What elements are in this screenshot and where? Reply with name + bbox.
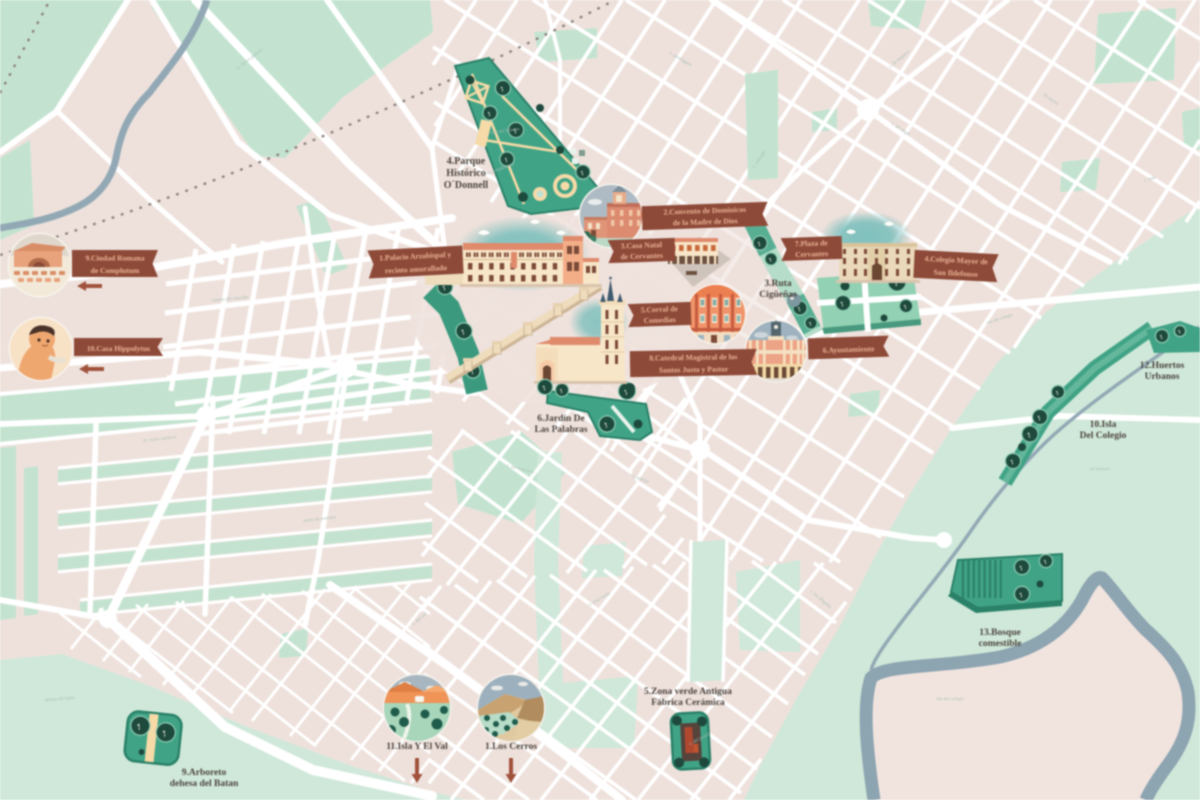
svg-text:Del Colegio: Del Colegio xyxy=(1080,431,1127,441)
svg-text:comestible: comestible xyxy=(979,639,1022,649)
svg-text:8.Catedral Magistral de los: 8.Catedral Magistral de los xyxy=(649,352,737,363)
svg-text:10.Casa Hippolytus: 10.Casa Hippolytus xyxy=(87,344,150,353)
svg-text:Cigüeñas: Cigüeñas xyxy=(759,290,797,300)
svg-text:de Complutum: de Complutum xyxy=(91,266,140,275)
svg-text:6.Jardín De: 6.Jardín De xyxy=(537,414,585,424)
svg-text:Las Palabras: Las Palabras xyxy=(534,425,587,435)
svg-text:1.Los Cerros: 1.Los Cerros xyxy=(485,742,537,752)
svg-text:4.Parque: 4.Parque xyxy=(447,156,486,167)
svg-text:3.Ruta: 3.Ruta xyxy=(764,279,791,289)
svg-text:rio henares: rio henares xyxy=(1090,466,1110,471)
svg-text:7.Plaza de: 7.Plaza de xyxy=(795,238,829,248)
svg-text:Cervantes: Cervantes xyxy=(795,249,828,259)
svg-text:11.Isla Y El Val: 11.Isla Y El Val xyxy=(386,742,448,752)
svg-text:dehesa del Batan: dehesa del Batan xyxy=(170,779,239,789)
svg-text:Fábrica Cerámica: Fábrica Cerámica xyxy=(651,698,725,708)
svg-text:12.Huertos: 12.Huertos xyxy=(1140,361,1185,371)
svg-text:3.Casa Natal: 3.Casa Natal xyxy=(621,240,663,250)
svg-text:9.Ciudad Romana: 9.Ciudad Romana xyxy=(85,253,144,262)
svg-text:de Cervantes: de Cervantes xyxy=(620,251,663,261)
svg-text:6.Ayuntamiento: 6.Ayuntamiento xyxy=(823,344,875,355)
svg-text:5.Corral de: 5.Corral de xyxy=(641,304,679,314)
svg-text:13.Bosque: 13.Bosque xyxy=(979,628,1020,638)
svg-text:10.Isla: 10.Isla xyxy=(1090,420,1117,430)
svg-text:9.Arboreto: 9.Arboreto xyxy=(182,768,227,778)
svg-text:isla del colegio: isla del colegio xyxy=(936,696,965,701)
svg-text:Santos Justo y Pastor: Santos Justo y Pastor xyxy=(659,364,729,374)
svg-text:Histórico: Histórico xyxy=(446,168,485,179)
svg-text:O´Donnell: O´Donnell xyxy=(444,180,489,191)
svg-text:Comedias: Comedias xyxy=(644,315,676,325)
svg-text:5.Zona verde Antigua: 5.Zona verde Antigua xyxy=(644,687,732,697)
svg-text:Urbanos: Urbanos xyxy=(1145,372,1180,382)
